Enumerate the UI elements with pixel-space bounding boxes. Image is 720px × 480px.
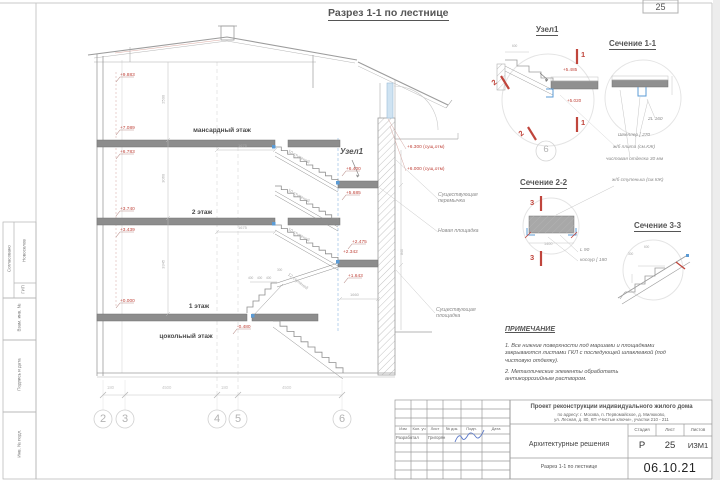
tb-col-doc: № док. [443,427,461,432]
dim-label: 300 [277,269,282,273]
dim-label: 1660 [350,293,359,298]
tb-section-name: Архитектурные решения [510,441,628,449]
stairs [247,145,343,379]
elevation-label: +3.439 [120,228,135,234]
note-item: 2. Металлические элементы обработать ант… [505,369,667,384]
tb-developed-label: Разработал [396,436,419,441]
annotation-existing-landing: Существующая площадка [436,308,476,320]
page-number: 25 [643,2,678,12]
project-name-line1: Проект реконструкции индивидуального жил… [515,404,708,411]
notes-title: ПРИМЕЧАНИЕ [505,326,555,334]
elevation-label: +2.342 [343,250,358,256]
tb-subtitle: Разрез 1-1 по лестнице [510,465,628,471]
elevation-label: +5.020 [567,98,581,103]
tb-col-list: Лист [427,427,443,432]
dim-label: 400 [248,277,253,281]
dim-label: 600 [644,246,649,250]
detail-node-title: Узел1 [536,25,558,36]
axis-label-4: 4 [208,413,226,426]
tb-sheets-header: Листов [684,427,712,432]
detail-section-3-3 [618,240,690,304]
s22-annotation: ж/б ступенька (см.КЖ) [612,178,664,184]
axis-label-6-detail: 6 [537,145,555,156]
elevation-label: +6.783 [120,150,135,156]
cut-mark-label: 1 [581,119,585,128]
axis-label-2: 2 [94,413,112,426]
tb-sheets-value: ИЗМ1 [684,442,712,451]
cut-mark-label: 3 [530,254,534,263]
floor-label-basement: цокольный этаж [150,333,222,340]
stamp-agreed: Согласовано [6,233,11,285]
dim-label: 3345 [162,252,167,276]
tb-developed-name: Григорян [428,436,445,441]
cut-mark-label: 3 [530,199,534,208]
stamp-vzam: Взам. инв. № [16,292,21,344]
s11-annotation: 2L 160 [648,117,663,123]
dim-label: 1675 [238,144,247,149]
dim-label: 400 [257,277,262,281]
stamp-name: Новоселов [21,227,26,275]
detail-node1 [497,49,617,161]
note-item: 1. Все нижние поверхности под маршами и … [505,343,667,365]
floor-label-1: 1 этаж [179,303,219,310]
floor-label-2: 2 этаж [182,209,222,216]
elevation-label: +6.000 (сущ.отм) [407,167,444,173]
axis-dim: 180 [221,386,228,391]
cut-mark-label: 1 [581,51,585,60]
elevation-label: +6.300 (сущ.отм) [407,145,444,151]
tb-stage-value: Р [628,441,656,452]
axis-dim: 4500 [282,386,291,391]
elevation-label: +7.089 [120,126,135,132]
annotation-existing-lintel: Существующая перемычка [438,193,478,205]
elevation-label: +6.400 [346,167,361,173]
signature-scribble [455,430,484,442]
dim-label: 1675 [238,226,247,231]
tb-col-podp: Подп. [461,427,482,432]
elevation-label: +3.740 [120,207,135,213]
axis-dim: 180 [107,386,114,391]
dim-label: 300 [628,253,633,257]
detail-section-1-1 [605,60,681,158]
tb-sheet-value: 25 [656,441,684,452]
elevation-label: +9.883 [120,73,135,79]
s22-annotation: косоур [ 180 [580,258,607,264]
s22-annotation: L 90 [580,248,589,254]
building-section [88,26,458,428]
dim-label: 400 [266,277,271,281]
cut-marks-node [501,49,577,140]
s11-annotation: ж/б плита (см.КЖ) [613,145,655,151]
s11-annotation: чистовая отделка 30 мм [606,157,663,163]
axis-label-6: 6 [333,413,351,426]
dim-label: 600 [512,45,517,49]
tb-col-data: Дата [482,427,510,432]
annotation-new-landing: Новая площадка [438,229,479,235]
window [387,83,393,118]
roof [88,26,458,139]
elevation-label: +2.475 [352,240,367,246]
axis-label-3: 3 [116,413,134,426]
detail-section-2-2 [523,186,614,266]
landing-upper [338,181,378,188]
drawing-sheet: 25 Разрез 1-1 по лестнице Согласовано Но… [0,0,720,480]
dim-label: 2500 [162,87,167,111]
stamp-inv: Инв. № подл. [16,418,21,470]
sheet-title: Разрез 1-1 по лестнице [328,7,449,21]
landing-lower [338,260,378,267]
tb-stage-header: Стадия [628,427,656,432]
stamp-sign-date: Подпись и дата [16,344,21,406]
project-name-line3: ул. Лесная, д. 80, КП «Чистые ключи», уч… [515,417,708,422]
detail-s11-title: Сечение 1-1 [609,39,656,50]
elevation-label: +0.000 [120,299,135,305]
elevation-label: +5.485 [563,67,577,72]
dim-label: 840 [400,242,404,262]
node-callout: Узел1 [340,147,363,156]
tb-col-kol: Кол. уч [411,427,427,432]
tb-col-izm: Изм [395,427,411,432]
axis-label-5: 5 [229,413,247,426]
walls [97,54,438,377]
tb-sheet-header: Лист [656,427,684,432]
floor-label-mansard: мансардный этаж [190,127,254,134]
detail-s22-title: Сечение 2-2 [520,178,567,189]
elevation-marks [116,77,366,334]
elevation-label: -0.480 [237,325,251,331]
detail-s33-title: Сечение 3-3 [634,221,681,232]
axis-dim: 4500 [162,386,171,391]
dim-label: 1400 [544,242,552,246]
stamp-role: ГИП [22,277,27,301]
s11-annotation: Швеллер [ 270 [618,133,650,139]
elevation-label: +1.643 [348,274,363,280]
dim-label: 3060 [162,166,167,190]
tb-date: 06.10.21 [628,461,712,475]
elevation-label: +5.685 [346,191,361,197]
